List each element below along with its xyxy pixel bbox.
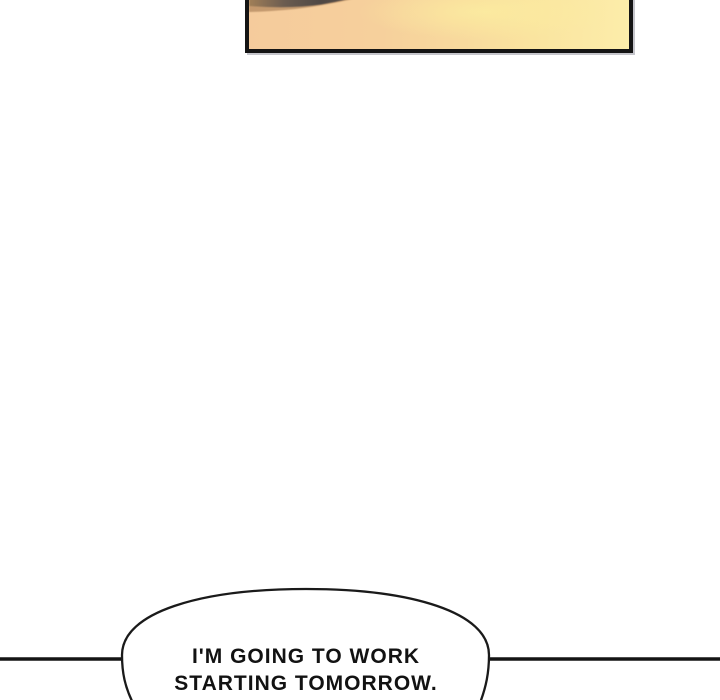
comic-page: I'M GOING TO WORK STARTING TOMORROW.	[0, 0, 720, 700]
bubble-layer	[0, 0, 720, 700]
speech-line-1: I'M GOING TO WORK	[122, 643, 490, 670]
speech-line-2: STARTING TOMORROW.	[122, 670, 490, 697]
speech-text: I'M GOING TO WORK STARTING TOMORROW.	[122, 643, 490, 697]
